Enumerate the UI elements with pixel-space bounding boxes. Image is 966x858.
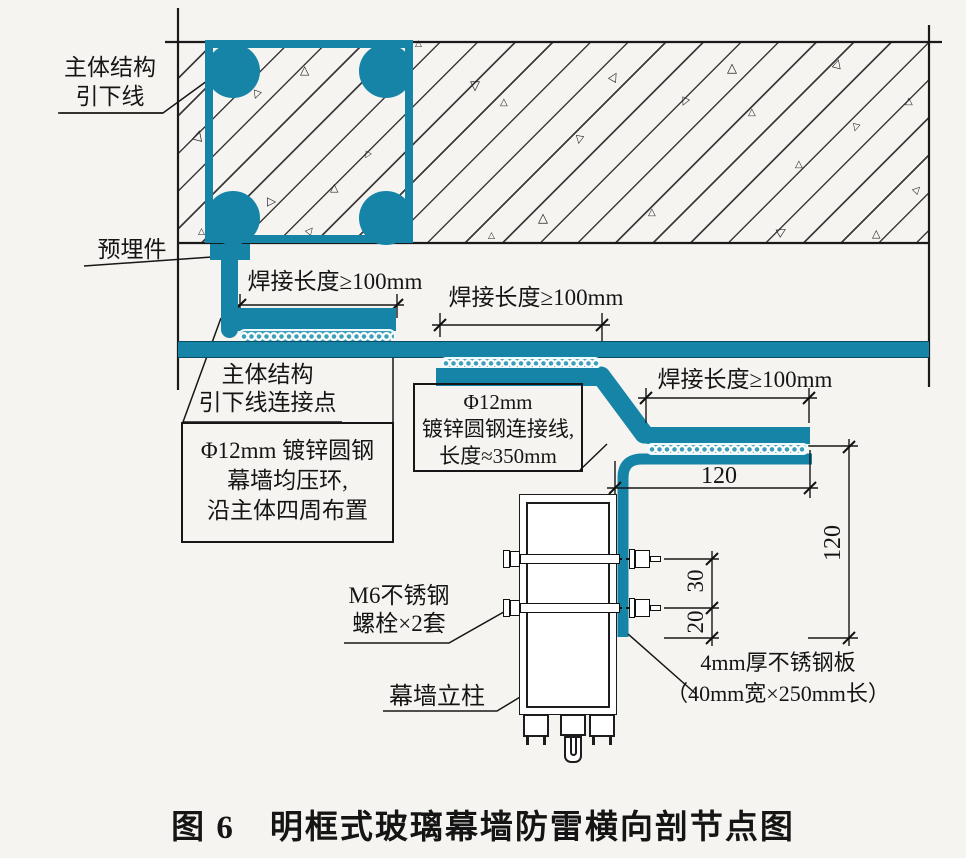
dim-30: 30	[682, 566, 706, 596]
wire-note-box: Φ12mm 镀锌圆钢连接线, 长度≈350mm	[413, 383, 583, 472]
bolt-shaft	[520, 603, 620, 613]
plate-note-label: 4mm厚不锈钢板 （40mm宽×250mm长）	[652, 647, 904, 709]
equipotential-ring-bar	[178, 341, 929, 358]
rebar-circle	[359, 44, 413, 98]
foot-leg	[543, 737, 546, 745]
foot-leg	[526, 737, 529, 745]
rebar-circle	[206, 191, 260, 245]
rebar-circle	[206, 44, 260, 98]
mullion-foot-center	[560, 714, 586, 736]
mullion-foot-left	[523, 714, 549, 737]
weld-seam-3	[646, 443, 809, 455]
bolt-nut	[635, 599, 650, 617]
ring-note-box: Φ12mm 镀锌圆钢 幕墙均压环, 沿主体四周布置	[181, 422, 394, 543]
bolt-nut	[635, 550, 650, 568]
connection-wire-diagonal	[601, 376, 644, 434]
embed-part-label: 预埋件	[82, 236, 182, 264]
dim-120-horizontal: 120	[695, 462, 743, 490]
weld-length-label-2: 焊接长度≥100mm	[436, 284, 636, 312]
bolt-tip	[650, 556, 661, 562]
bolt-washer	[503, 599, 510, 617]
dim-120-vertical: 120	[819, 523, 845, 563]
mullion-foot-right	[589, 714, 615, 737]
bolt-tip	[650, 605, 661, 611]
weld-length-label-3: 焊接长度≥100mm	[645, 366, 845, 394]
wire-note-leader	[580, 444, 607, 470]
bolt-shaft	[520, 554, 620, 564]
figure-caption: 图 6 明框式玻璃幕墙防雷横向剖节点图	[0, 800, 966, 848]
foot-leg	[592, 737, 595, 745]
foot-leg	[609, 737, 612, 745]
connection-point-label: 主体结构 引下线连接点	[190, 361, 345, 417]
bolt-note-label: M6不锈钢 螺栓×2套	[340, 582, 458, 638]
bolt-head	[510, 551, 520, 567]
connection-wire-end-bar	[640, 427, 810, 444]
bolt-washer	[503, 550, 510, 568]
rebar-circle	[359, 191, 413, 245]
dim-20: 20	[682, 607, 706, 637]
mullion-label: 幕墙立柱	[382, 683, 492, 711]
lightning-protection-detail-diagram: △△△△△△△△△△△△△△△△△△△△△△△△△△	[0, 0, 966, 858]
bolt-head	[510, 600, 520, 616]
down-lead-elbow-bar	[221, 308, 396, 331]
mullion-prong-slot	[570, 736, 577, 756]
weld-length-label-1: 焊接长度≥100mm	[235, 268, 435, 296]
down-lead-label: 主体结构 引下线	[56, 53, 164, 111]
